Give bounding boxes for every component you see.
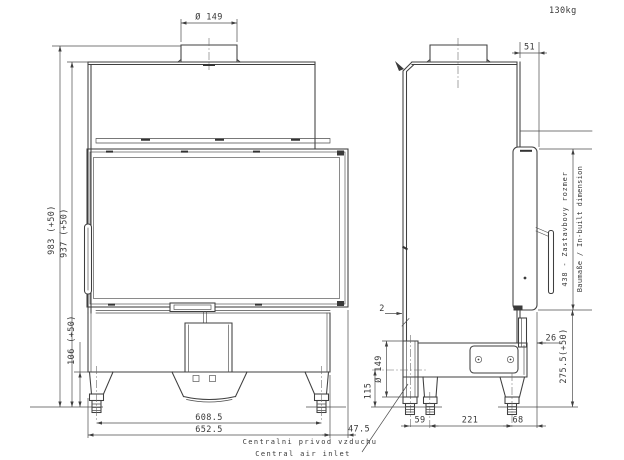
- flue-collar-front: [178, 38, 240, 70]
- weight-label: 130kg: [549, 6, 577, 16]
- top-plate: [88, 62, 315, 65]
- side-top-plate: [412, 62, 517, 65]
- corner-mark: [395, 61, 404, 71]
- dim-overall-width: 652.5: [195, 425, 223, 435]
- dim-overall-height: 983 (+50): [47, 205, 57, 255]
- front-view: [85, 38, 349, 420]
- dim-foot-span-rear: 68: [512, 416, 523, 426]
- base-plinth: [88, 313, 330, 402]
- dim-flue-diameter: Ø 149: [195, 12, 223, 23]
- dim-sheet-gap: 2: [379, 304, 385, 314]
- dim-foot-span-front: 59: [414, 416, 425, 426]
- side-base: [404, 343, 527, 377]
- dim-foot-span-mid: 221: [462, 416, 479, 426]
- hinge-bottom: [337, 301, 344, 306]
- dim-frame-overhang: 26: [546, 334, 557, 344]
- note-air-inlet-en: Central air inlet: [255, 450, 350, 458]
- dim-foot-span: 608.5: [195, 413, 223, 423]
- hinge-top: [337, 151, 344, 156]
- dim-inbuilt-depth-primary: 438 - Zastavbovy rozmer: [561, 171, 569, 286]
- door-frame-side: [513, 147, 537, 311]
- note-air-inlet-cz: Centralni privod vzduchu: [243, 438, 378, 446]
- door-handle-side: [536, 228, 554, 294]
- dim-inbuilt-depth-secondary: Baumaße / In-built dimension: [576, 166, 584, 292]
- dim-plinth-height: 106 (+50): [67, 315, 77, 365]
- technical-drawing-page: Ø 149 983 (+50) 937 (+50) 106 (+50) 608.…: [0, 0, 624, 460]
- door-handle-front: [85, 224, 92, 294]
- fireplace-insert-drawing: Ø 149 983 (+50) 937 (+50) 106 (+50) 608.…: [0, 0, 624, 460]
- glass-door: [87, 149, 348, 307]
- front-feet: [90, 366, 329, 420]
- air-inlet-note: Centralni privod vzduchu Central air inl…: [243, 384, 408, 458]
- dim-lower-inbuilt-height: 275.5(+50): [559, 328, 569, 383]
- front-dimensions: Ø 149 983 (+50) 937 (+50) 106 (+50) 608.…: [30, 12, 370, 439]
- back-edge: [403, 62, 414, 340]
- dim-body-height: 937 (+50): [60, 208, 70, 258]
- dim-frame-offset: 47.5: [348, 425, 370, 435]
- dim-flue-back-offset: 51: [524, 43, 535, 53]
- dim-inlet-height: 115: [364, 383, 374, 400]
